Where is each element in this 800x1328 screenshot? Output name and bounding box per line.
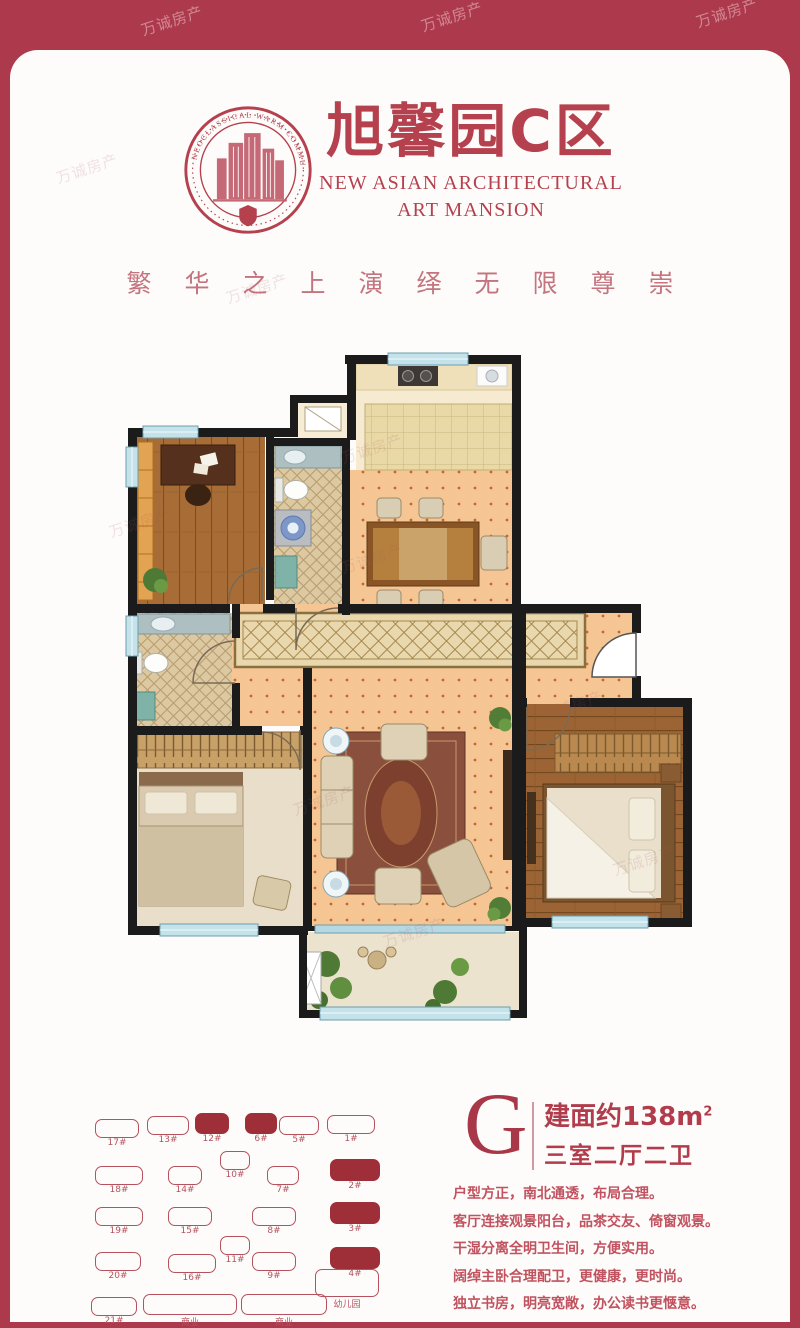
hallway-runner — [235, 613, 585, 667]
feature-item: 户型方正，南北通透，布局合理。 — [453, 1181, 783, 1209]
bedroom-chair — [252, 875, 291, 911]
site-building-15#: 15# — [168, 1207, 212, 1226]
site-building-7#: 7# — [267, 1166, 299, 1185]
site-building-label: 15# — [181, 1226, 200, 1236]
emblem-shield-icon — [239, 205, 256, 226]
site-building-label: 17# — [108, 1138, 127, 1148]
feature-item: 客厅连接观景阳台，品茶交友、倚窗观景。 — [453, 1209, 783, 1237]
site-building-label: 13# — [159, 1135, 178, 1145]
site-building-10#: 10# — [220, 1151, 250, 1170]
site-building-3#: 3# — [330, 1202, 380, 1224]
unit-layout: 三室二厅二卫 — [544, 1136, 694, 1170]
site-plan: 17#13#12#6#5#1#18#14#10#7#2#19#15#8#3#11… — [75, 1103, 410, 1322]
site-building-13#: 13# — [147, 1116, 189, 1135]
site-building-label: 11# — [226, 1255, 245, 1265]
site-building-label: 幼儿园 — [333, 1297, 360, 1310]
site-building-label: 14# — [176, 1185, 195, 1195]
site-building-label: 9# — [267, 1271, 280, 1281]
poster-page: { "watermark": { "text": "万诚房产" }, "head… — [0, 0, 800, 1322]
sofa — [321, 756, 353, 858]
armchair — [381, 724, 427, 760]
feature-item: 阔绰主卧合理配卫，更健康，更时尚。 — [453, 1264, 783, 1292]
site-building-6#: 6# — [245, 1113, 277, 1134]
site-building-label: 18# — [110, 1185, 129, 1195]
brand-title-block: 旭馨园C区 NEW ASIAN ARCHITECTURAL ART MANSIO… — [318, 100, 624, 223]
site-building-label: 19# — [110, 1226, 129, 1236]
tv-cabinet — [503, 750, 512, 860]
patio-table — [368, 951, 386, 969]
site-building-label: 2# — [348, 1181, 361, 1191]
unit-area-text: 建面约138m — [544, 1102, 703, 1132]
site-building-12#: 12# — [195, 1113, 229, 1134]
floor-plan-drawing — [115, 352, 695, 1027]
bench — [527, 792, 536, 864]
unit-type-letter: G — [464, 1088, 528, 1163]
site-building-商业: 商业 — [143, 1294, 237, 1315]
bed-headboard — [139, 772, 243, 786]
corridor-nook-floor — [232, 675, 312, 726]
site-building-8#: 8# — [252, 1207, 296, 1226]
divider — [532, 1102, 534, 1170]
unit-area-sup: 2 — [703, 1104, 712, 1119]
emblem-building-icon — [213, 133, 287, 201]
kitchen-fixtures — [356, 364, 512, 470]
brand-emblem: NEOCLASSICAL WARM COMMUNITY — [180, 94, 316, 252]
armchair — [375, 868, 421, 904]
site-building-18#: 18# — [95, 1166, 143, 1185]
site-building-9#: 9# — [252, 1252, 296, 1271]
subtitle-line2: ART MANSION — [318, 197, 624, 223]
slogan: 繁华之上演绎无限尊崇 — [0, 264, 800, 300]
toilet-icon — [144, 654, 168, 673]
project-title: 旭馨园C区 — [318, 100, 624, 164]
site-building-label: 8# — [267, 1226, 280, 1236]
unit-info: G 建面约138m2 三室二厅二卫 — [440, 1088, 780, 1183]
feature-list: 户型方正，南北通透，布局合理。 客厅连接观景阳台，品茶交友、倚窗观景。 干湿分离… — [453, 1181, 783, 1319]
site-building-4#: 4# — [330, 1247, 380, 1269]
sink-icon — [284, 450, 306, 464]
toilet-icon — [284, 481, 308, 500]
site-building-label: 16# — [183, 1273, 202, 1283]
feature-item: 独立书房，明亮宽敞，办公读书更惬意。 — [453, 1291, 783, 1319]
subtitle-line1: NEW ASIAN ARCHITECTURAL — [318, 170, 624, 197]
site-building-label: 1# — [344, 1134, 357, 1144]
floor-plan — [115, 352, 695, 1027]
site-building-17#: 17# — [95, 1119, 139, 1138]
site-building-label: 7# — [276, 1185, 289, 1195]
site-building-幼儿园: 幼儿园 — [315, 1269, 379, 1297]
sink-icon — [151, 617, 175, 631]
desk-chair — [185, 484, 211, 506]
site-building-11#: 11# — [220, 1236, 250, 1255]
feature-item: 干湿分离全明卫生间，方便实用。 — [453, 1236, 783, 1264]
site-building-label: 12# — [203, 1134, 222, 1144]
site-building-21#: 21# — [91, 1297, 137, 1316]
site-building-label: 20# — [109, 1271, 128, 1281]
site-building-14#: 14# — [168, 1166, 202, 1185]
emblem-icon: NEOCLASSICAL WARM COMMUNITY — [180, 94, 316, 248]
unit-area: 建面约138m2 — [544, 1096, 712, 1133]
site-building-5#: 5# — [279, 1116, 319, 1135]
site-building-2#: 2# — [330, 1159, 380, 1181]
site-building-19#: 19# — [95, 1207, 143, 1226]
closet-storage — [305, 407, 341, 431]
site-building-label: 3# — [348, 1224, 361, 1234]
site-building-label: 6# — [254, 1134, 267, 1144]
kitchen-island — [365, 404, 512, 470]
site-building-label: 5# — [292, 1135, 305, 1145]
site-building-16#: 16# — [168, 1254, 216, 1273]
nightstand — [661, 764, 681, 782]
site-building-label: 10# — [226, 1170, 245, 1180]
site-building-1#: 1# — [327, 1115, 375, 1134]
site-building-label: 21# — [105, 1316, 124, 1326]
site-building-商业: 商业 — [241, 1294, 327, 1315]
site-building-20#: 20# — [95, 1252, 141, 1271]
